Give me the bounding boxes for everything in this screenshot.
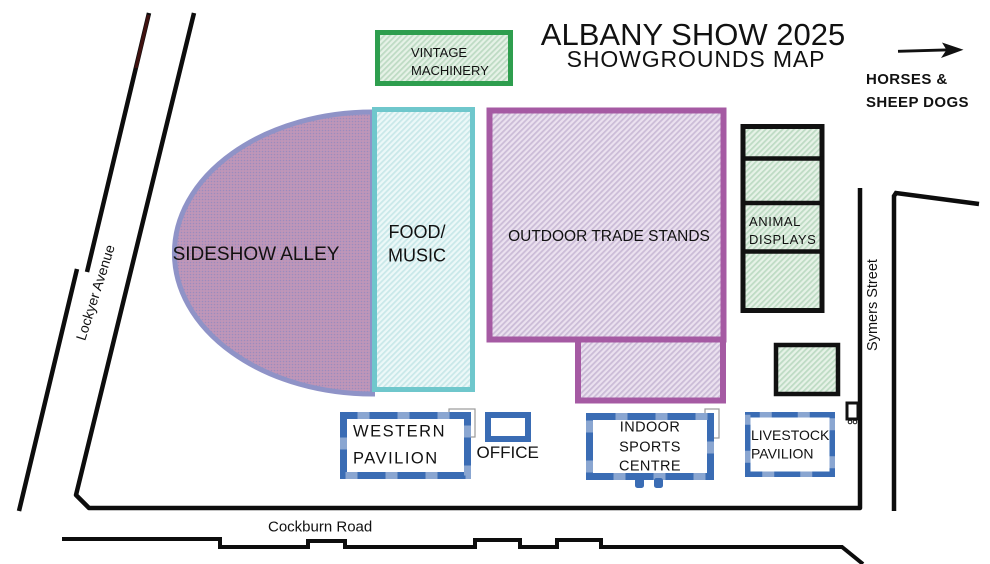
svg-text:SPORTS: SPORTS — [619, 440, 681, 456]
svg-text:ANIMAL: ANIMAL — [749, 214, 801, 229]
svg-text:OUTDOOR TRADE STANDS: OUTDOOR TRADE STANDS — [508, 228, 710, 245]
svg-text:MACHINERY: MACHINERY — [411, 63, 489, 78]
svg-text:SIDESHOW ALLEY: SIDESHOW ALLEY — [173, 244, 340, 265]
svg-text:WESTERN: WESTERN — [353, 423, 446, 441]
svg-text:CENTRE: CENTRE — [619, 459, 681, 475]
svg-text:SHEEP DOGS: SHEEP DOGS — [866, 94, 969, 111]
svg-text:PAVILION: PAVILION — [353, 450, 439, 468]
svg-text:Symers Street: Symers Street — [865, 259, 881, 351]
svg-text:FOOD/: FOOD/ — [389, 222, 446, 242]
svg-text:DISPLAYS: DISPLAYS — [749, 232, 816, 247]
svg-text:OFFICE: OFFICE — [477, 443, 539, 462]
svg-text:Cockburn Road: Cockburn Road — [268, 519, 372, 536]
svg-text:MUSIC: MUSIC — [388, 246, 446, 266]
svg-text:PAVILION: PAVILION — [751, 446, 814, 462]
svg-text:INDOOR: INDOOR — [620, 420, 680, 436]
svg-text:HORSES &: HORSES & — [866, 71, 948, 88]
svg-text:VINTAGE: VINTAGE — [411, 45, 467, 60]
svg-text:SHOWGROUNDS MAP: SHOWGROUNDS MAP — [567, 46, 826, 72]
svg-text:LIVESTOCK: LIVESTOCK — [751, 427, 830, 443]
